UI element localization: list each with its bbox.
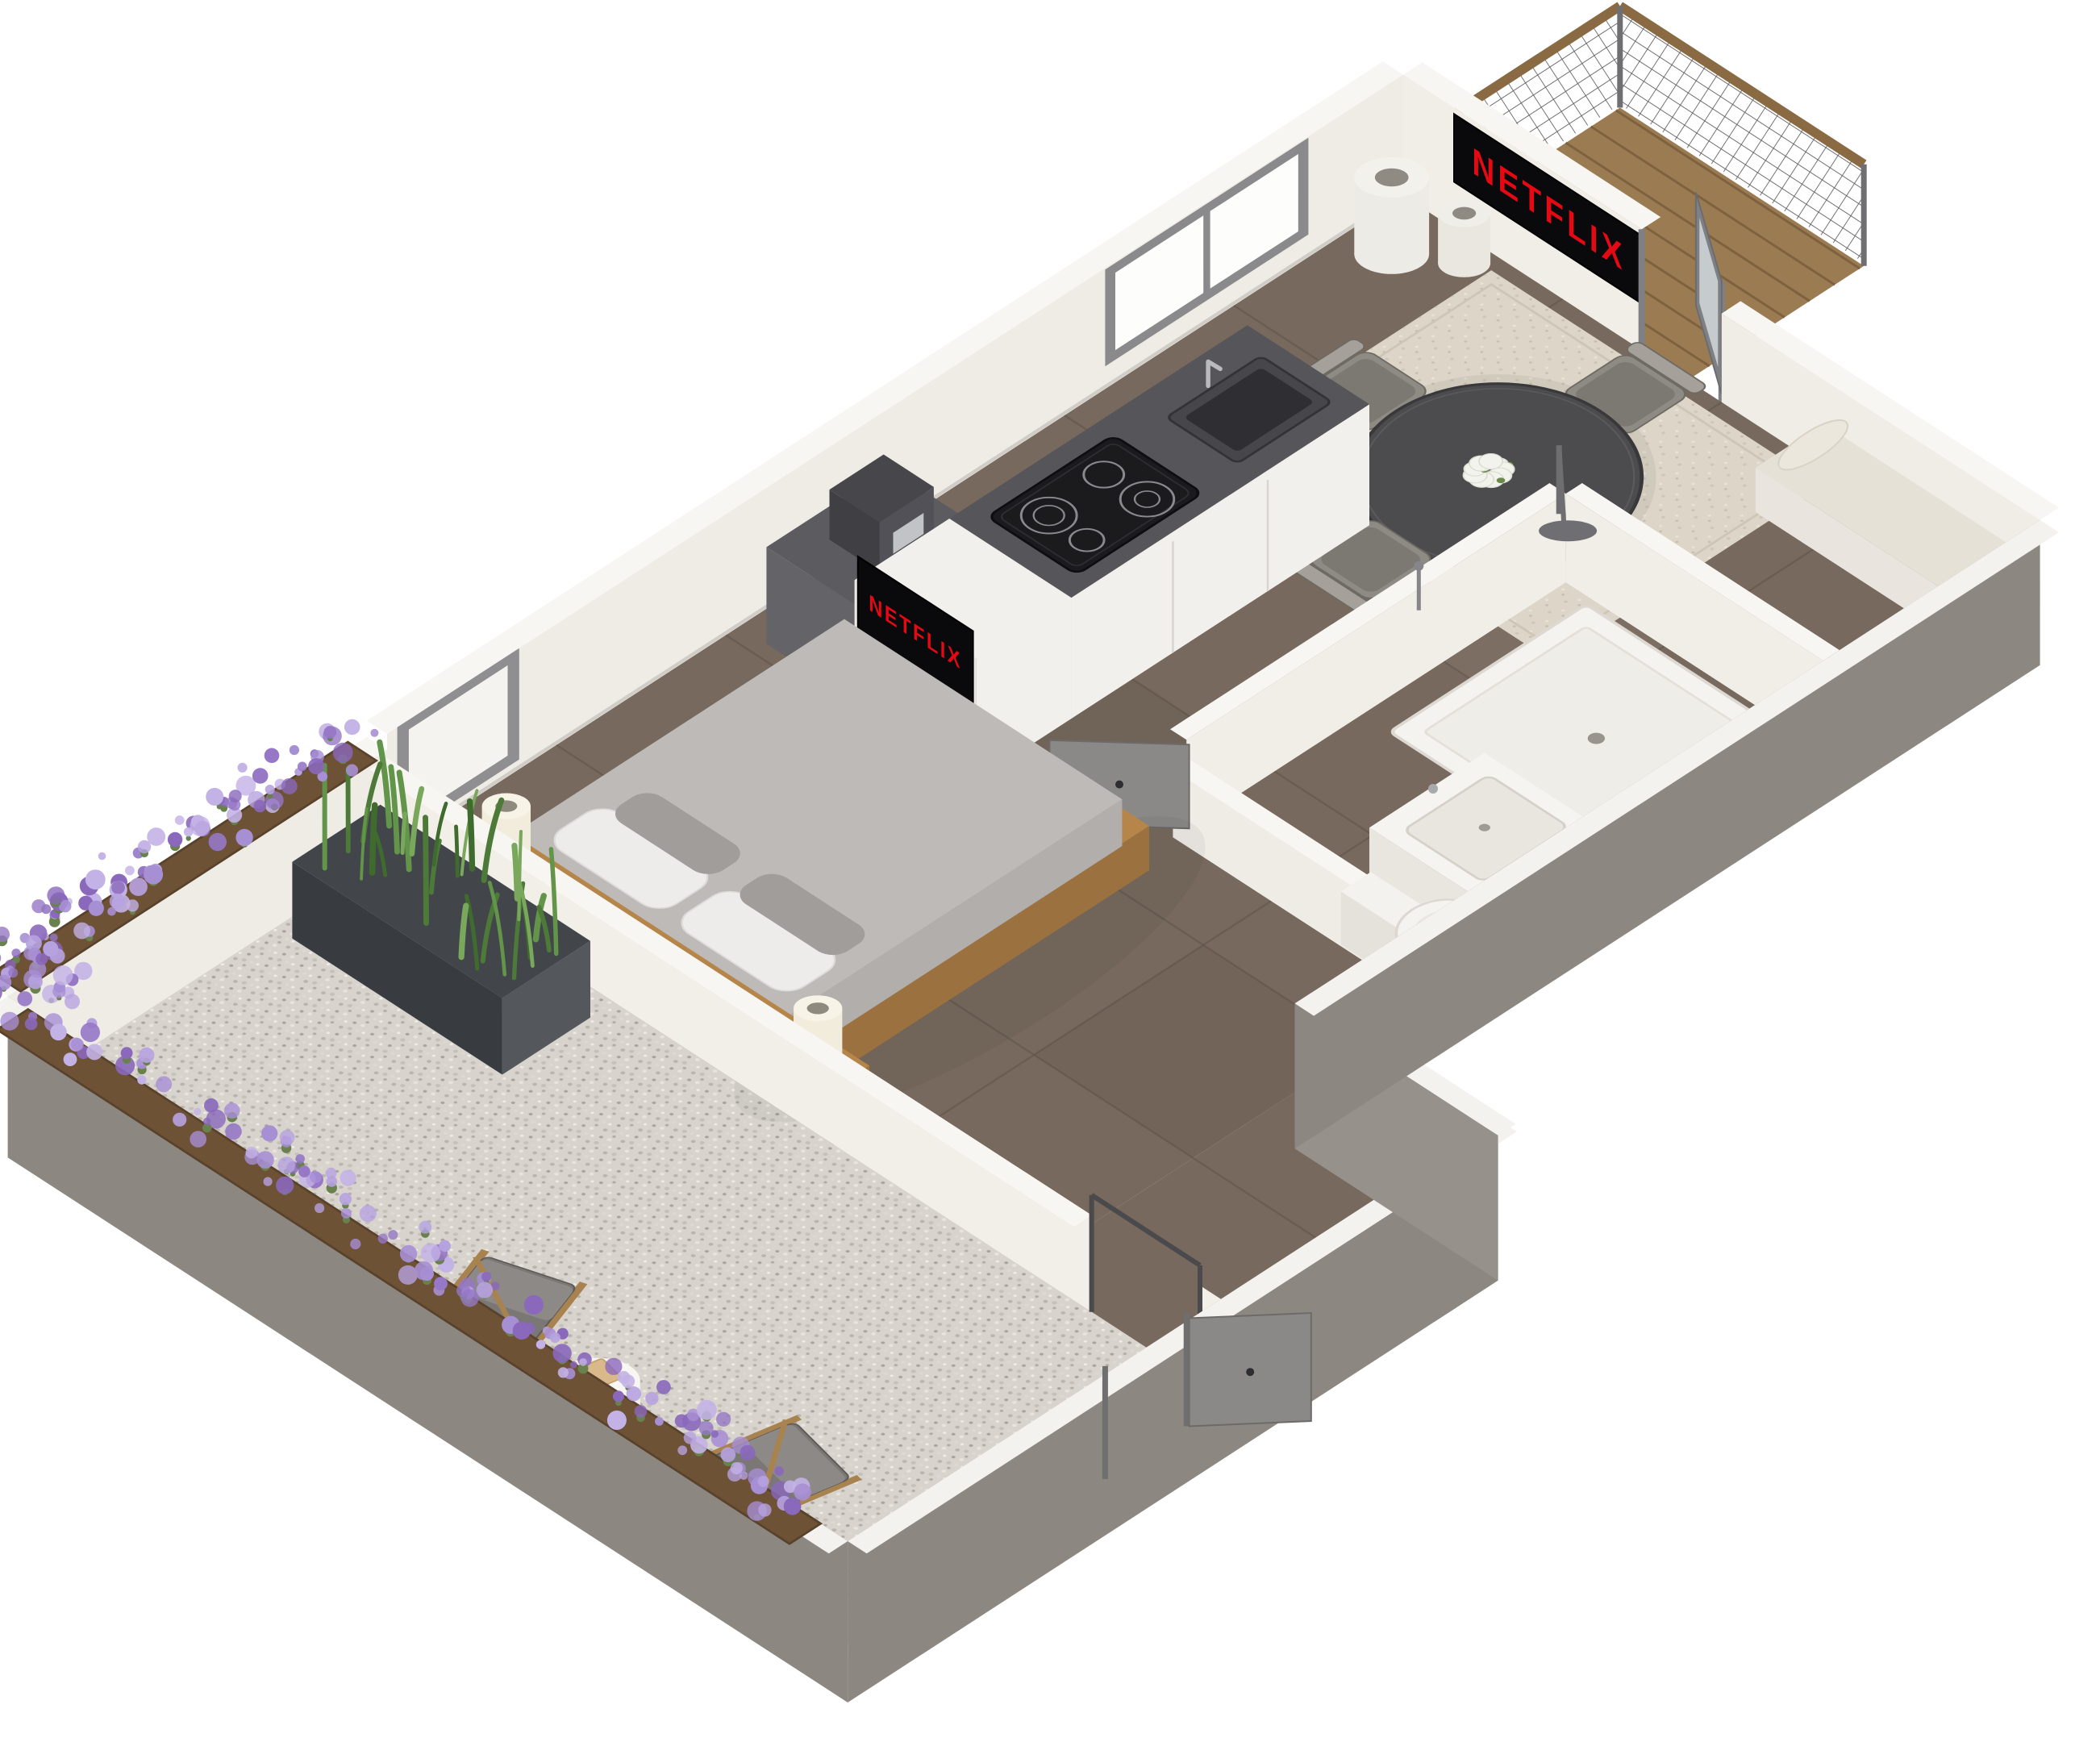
apartment-floorplan-render: NETFLIXNETFLIX [0,0,2100,1742]
floorplan-3d-scene: NETFLIXNETFLIX [0,0,2100,1742]
